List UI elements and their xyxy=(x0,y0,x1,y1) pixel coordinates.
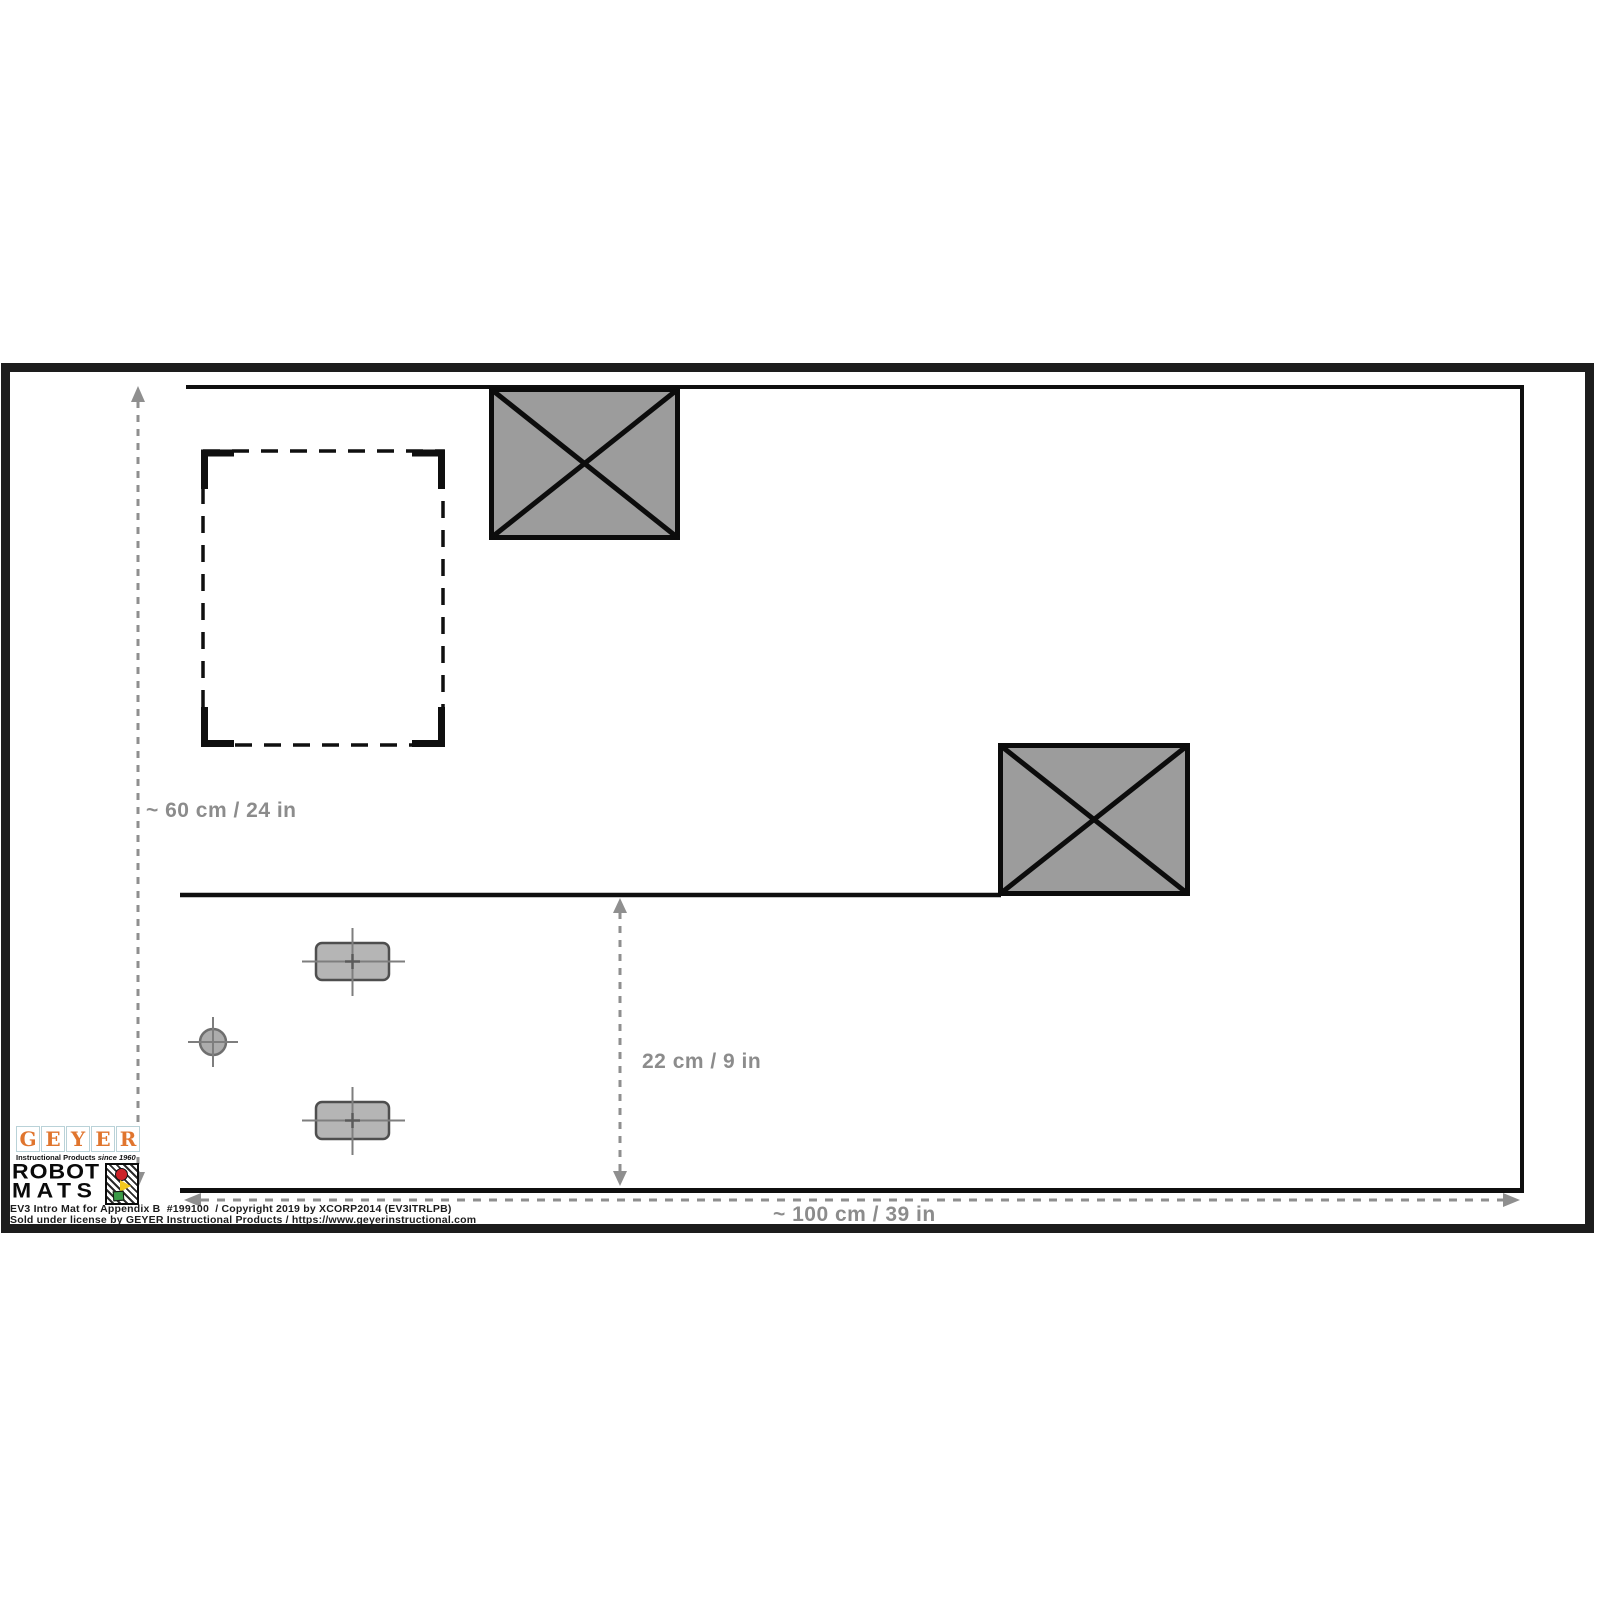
obstacle-box-2 xyxy=(1001,746,1188,894)
geyer-letter-box: E xyxy=(91,1126,115,1152)
geyer-letter-box: G xyxy=(16,1126,40,1152)
geyer-letter-box: E xyxy=(41,1126,65,1152)
geyer-letter-box: R xyxy=(116,1126,140,1152)
geyer-letter-box: Y xyxy=(66,1126,90,1152)
width-dimension-label: ~ 100 cm / 39 in xyxy=(773,1203,936,1227)
lower-zone-dimension-label: 22 cm / 9 in xyxy=(642,1050,761,1074)
obstacle-box-1 xyxy=(492,390,678,538)
geyer-logo: G E Y E R Instructional Products since 1… xyxy=(16,1126,140,1162)
robot-mats-wordmark: ROBOT MATS xyxy=(12,1162,100,1200)
mat-diagram-page: ~ 60 cm / 24 in 22 cm / 9 in ~ 100 cm / … xyxy=(0,0,1600,1600)
robot-mats-line2: MATS xyxy=(12,1182,100,1199)
geyer-wordmark: G E Y E R xyxy=(16,1126,140,1152)
footer-license-line: Sold under license by GEYER Instructiona… xyxy=(10,1214,476,1226)
mat-outer-border xyxy=(6,368,1590,1229)
height-dimension-label: ~ 60 cm / 24 in xyxy=(146,799,297,823)
robot-mats-badge xyxy=(105,1163,139,1205)
green-square-icon xyxy=(113,1191,125,1202)
geyer-tagline-since: since 1960 xyxy=(98,1153,136,1162)
